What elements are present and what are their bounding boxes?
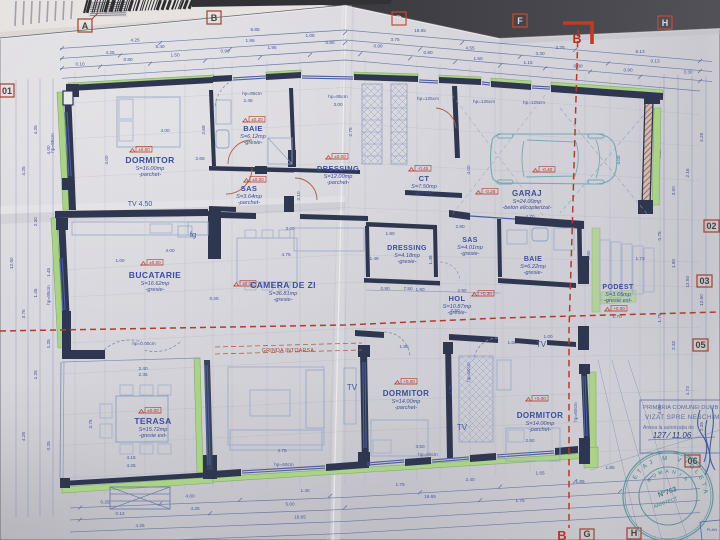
svg-text:hp=85cm: hp=85cm	[328, 94, 348, 99]
svg-text:PLAN: PLAN	[707, 527, 718, 532]
svg-text:4.00: 4.00	[165, 248, 175, 253]
svg-text:GRINDA INTOARSA: GRINDA INTOARSA	[262, 348, 314, 354]
svg-text:CT: CT	[419, 174, 430, 183]
svg-text:TERASA: TERASA	[134, 416, 171, 426]
svg-text:BUCATARIE: BUCATARIE	[129, 270, 181, 280]
svg-text:DRESSING: DRESSING	[387, 245, 427, 252]
svg-text:3.75: 3.75	[88, 419, 93, 429]
svg-text:-0.40: -0.40	[542, 167, 553, 172]
svg-text:hp=60cm: hp=60cm	[466, 362, 471, 382]
svg-text:D: D	[396, 14, 403, 24]
svg-text:3.75: 3.75	[555, 45, 565, 50]
svg-text:4.25: 4.25	[699, 132, 704, 142]
svg-text:1.80: 1.80	[586, 250, 591, 260]
svg-text:1.70: 1.70	[612, 314, 622, 319]
svg-text:-parchet-: -parchet-	[327, 180, 350, 186]
svg-text:2.45: 2.45	[243, 98, 253, 103]
svg-text:B: B	[211, 13, 218, 23]
svg-text:3.75: 3.75	[390, 37, 400, 42]
svg-text:1.50: 1.50	[473, 56, 483, 61]
svg-text:PODEST: PODEST	[602, 284, 634, 291]
svg-text:1.48: 1.48	[369, 256, 379, 261]
svg-text:05: 05	[695, 340, 705, 350]
svg-text:1.75: 1.75	[395, 482, 405, 487]
svg-text:1.65: 1.65	[507, 340, 517, 345]
svg-text:+0.00: +0.00	[534, 396, 546, 401]
svg-text:5.85: 5.85	[250, 27, 260, 32]
svg-text:1.40: 1.40	[300, 488, 310, 493]
svg-text:2.32: 2.32	[671, 340, 676, 350]
svg-text:-gresie-: -gresie-	[146, 287, 165, 293]
svg-text:2.40: 2.40	[138, 366, 148, 371]
svg-text:3.60: 3.60	[285, 226, 295, 231]
svg-text:4.25: 4.25	[21, 431, 26, 441]
svg-text:±0.00: ±0.00	[138, 147, 150, 152]
svg-text:hp=60cm: hp=60cm	[573, 402, 578, 422]
svg-text:-gresie-: -gresie-	[244, 140, 263, 146]
svg-text:±0.20: ±0.20	[251, 117, 263, 122]
svg-text:-0.28: -0.28	[485, 189, 496, 194]
svg-text:1.00: 1.00	[115, 258, 125, 263]
svg-text:4.55: 4.55	[465, 45, 475, 50]
svg-text:A: A	[701, 489, 707, 494]
svg-text:hp=85cm: hp=85cm	[46, 285, 51, 305]
svg-text:hp=85cm: hp=85cm	[242, 91, 262, 96]
svg-text:DRESSING: DRESSING	[317, 164, 359, 173]
svg-text:-gresie-: -gresie-	[461, 251, 480, 257]
svg-text:1.65: 1.65	[535, 471, 545, 476]
svg-text:PRIMĂRIA COMUNEI DUMB: PRIMĂRIA COMUNEI DUMB	[643, 404, 718, 411]
svg-text:-parchet-: -parchet-	[238, 200, 261, 206]
svg-text:1.48: 1.48	[428, 255, 433, 265]
svg-text:1.73: 1.73	[685, 386, 690, 396]
svg-text:DORMITOR: DORMITOR	[517, 411, 564, 420]
svg-text:4.25: 4.25	[130, 38, 140, 43]
svg-text:6.13: 6.13	[635, 49, 645, 54]
svg-text:0.90: 0.90	[373, 44, 383, 49]
svg-text:1.95: 1.95	[245, 38, 255, 43]
svg-text:-beton elicopterizat-: -beton elicopterizat-	[502, 205, 551, 211]
svg-text:M: M	[662, 456, 668, 462]
svg-text:+0.00: +0.00	[403, 379, 415, 384]
svg-text:TV: TV	[347, 383, 358, 392]
svg-text:1.00: 1.00	[543, 334, 553, 339]
svg-text:DORMITOR: DORMITOR	[125, 155, 174, 165]
svg-text:1.85: 1.85	[399, 344, 409, 349]
svg-text:4.70: 4.70	[525, 214, 535, 219]
svg-text:-parchet-: -parchet-	[529, 427, 552, 433]
svg-text:1.80: 1.80	[671, 259, 676, 269]
svg-text:0.25: 0.25	[100, 500, 110, 505]
svg-text:A: A	[82, 21, 89, 31]
svg-text:4.25: 4.25	[21, 166, 26, 176]
svg-text:0.80: 0.80	[123, 57, 133, 62]
svg-text:SAS: SAS	[241, 184, 258, 193]
svg-text:0.80: 0.80	[573, 63, 583, 68]
svg-text:SAS: SAS	[462, 237, 478, 244]
svg-text:3.30: 3.30	[535, 51, 545, 56]
svg-text:BAIE: BAIE	[243, 124, 263, 133]
svg-text:1.45: 1.45	[33, 288, 38, 298]
svg-text:02: 02	[706, 221, 716, 231]
svg-text:4.25: 4.25	[448, 385, 453, 395]
svg-text:5.40: 5.40	[155, 44, 165, 49]
svg-text:hp=60cm: hp=60cm	[274, 462, 294, 467]
svg-text:4.25: 4.25	[135, 523, 145, 528]
svg-text:2.35: 2.35	[699, 422, 704, 432]
svg-text:12.50: 12.50	[685, 276, 690, 288]
svg-text:1.50: 1.50	[170, 52, 180, 57]
svg-text:3.30: 3.30	[683, 69, 693, 74]
svg-text:2.68: 2.68	[201, 125, 206, 135]
svg-text:7.50: 7.50	[403, 286, 413, 291]
svg-text:B: B	[572, 32, 581, 46]
svg-text:1.25: 1.25	[46, 339, 51, 349]
svg-text:0.80: 0.80	[423, 50, 433, 55]
svg-text:+0.30: +0.30	[480, 291, 492, 296]
svg-text:1.25: 1.25	[33, 370, 38, 380]
svg-text:TV: TV	[457, 423, 468, 432]
svg-text:1.80: 1.80	[385, 231, 395, 236]
svg-text:2.75: 2.75	[348, 127, 353, 137]
svg-text:4.75: 4.75	[281, 252, 291, 257]
svg-text:hp=125cm: hp=125cm	[473, 99, 495, 104]
svg-text:0.90: 0.90	[380, 286, 390, 291]
svg-text:2.90: 2.90	[455, 224, 465, 229]
svg-text:2.40: 2.40	[465, 477, 475, 482]
svg-text:4.25: 4.25	[33, 125, 38, 135]
svg-text:0.12: 0.12	[115, 511, 125, 516]
svg-text:4.25: 4.25	[190, 506, 200, 511]
svg-text:4.25: 4.25	[126, 463, 136, 468]
svg-text:2.30: 2.30	[33, 217, 38, 227]
svg-text:03: 03	[699, 276, 709, 286]
svg-text:0.80: 0.80	[325, 40, 335, 45]
svg-text:HOL: HOL	[448, 294, 465, 303]
svg-text:0.10: 0.10	[75, 62, 85, 67]
svg-text:4.75: 4.75	[277, 448, 287, 453]
svg-text:4.00: 4.00	[616, 155, 621, 165]
svg-text:DORMITOR: DORMITOR	[383, 389, 430, 398]
svg-text:0.25: 0.25	[46, 441, 51, 451]
svg-text:-parchet-: -parchet-	[139, 172, 162, 178]
svg-text:12.50: 12.50	[699, 294, 704, 306]
svg-text:TV: TV	[536, 340, 547, 349]
svg-text:-gresie-: -gresie-	[274, 297, 293, 303]
svg-text:3.75: 3.75	[21, 309, 26, 319]
svg-text:2.68: 2.68	[195, 156, 205, 161]
svg-text:2.50: 2.50	[525, 438, 535, 443]
svg-text:3.10: 3.10	[296, 191, 301, 201]
svg-text:CAMERA DE ZI: CAMERA DE ZI	[250, 280, 316, 290]
svg-text:+0.00: +0.00	[613, 306, 625, 311]
svg-text:-0.45: -0.45	[418, 166, 429, 171]
svg-text:4.00: 4.00	[466, 165, 471, 175]
svg-text:1.45: 1.45	[46, 267, 51, 277]
svg-text:4.00: 4.00	[185, 493, 195, 498]
svg-text:TV 4.50: TV 4.50	[128, 201, 153, 208]
svg-text:fg: fg	[190, 230, 196, 239]
svg-text:BAIE: BAIE	[524, 256, 542, 263]
svg-text:B: B	[557, 528, 566, 540]
svg-text:F: F	[517, 16, 523, 26]
svg-text:H: H	[631, 528, 638, 538]
svg-text:-parchet-: -parchet-	[395, 405, 418, 411]
svg-text:H: H	[662, 18, 669, 28]
svg-text:-gresie ext-: -gresie ext-	[139, 433, 167, 439]
svg-text:-gresie-: -gresie-	[524, 270, 543, 276]
svg-text:3.50: 3.50	[415, 444, 425, 449]
svg-text:-gresie ext-: -gresie ext-	[604, 298, 632, 304]
svg-text:18.65: 18.65	[294, 514, 306, 519]
svg-text:-gresie-: -gresie-	[415, 190, 434, 196]
svg-text:hp=0.00cm: hp=0.00cm	[132, 341, 155, 346]
svg-text:2.90: 2.90	[457, 288, 467, 293]
svg-text:1.15: 1.15	[523, 60, 533, 65]
svg-text:3.00: 3.00	[671, 186, 676, 196]
svg-text:hp=60cm: hp=60cm	[418, 452, 438, 457]
svg-text:±0.00: ±0.00	[147, 408, 159, 413]
svg-text:4.00: 4.00	[104, 155, 109, 165]
svg-text:±0.00: ±0.00	[149, 260, 161, 265]
svg-text:0.75: 0.75	[657, 231, 662, 241]
svg-text:1.90: 1.90	[415, 287, 425, 292]
svg-text:VIZAT SPRE NESCHIMB: VIZAT SPRE NESCHIMB	[645, 414, 720, 421]
svg-text:0.25: 0.25	[209, 296, 219, 301]
svg-text:1.06: 1.06	[305, 33, 315, 38]
svg-text:GARAJ: GARAJ	[512, 189, 542, 198]
svg-text:1.75: 1.75	[657, 313, 662, 323]
svg-text:2.35: 2.35	[138, 372, 148, 377]
svg-text:hp=125cm: hp=125cm	[417, 96, 439, 101]
svg-text:5.00: 5.00	[285, 502, 295, 507]
svg-text:hp=125cm: hp=125cm	[523, 100, 545, 105]
svg-text:±0.00: ±0.00	[334, 154, 346, 159]
svg-text:4.25: 4.25	[105, 50, 115, 55]
svg-text:0.90: 0.90	[623, 68, 633, 73]
svg-text:±0.00: ±0.00	[252, 177, 264, 182]
svg-text:4.15: 4.15	[126, 455, 136, 460]
svg-text:4.00: 4.00	[160, 128, 170, 133]
svg-text:hp=85cm: hp=85cm	[50, 133, 55, 153]
svg-text:01: 01	[2, 86, 12, 96]
svg-text:G: G	[583, 529, 590, 539]
svg-text:3.00: 3.00	[333, 102, 343, 107]
svg-text:2.16: 2.16	[685, 168, 690, 178]
svg-text:12.50: 12.50	[9, 257, 14, 269]
svg-text:1.95: 1.95	[267, 45, 277, 50]
svg-text:18.65: 18.65	[414, 28, 426, 33]
svg-text:0.13: 0.13	[650, 59, 660, 64]
svg-text:18.65: 18.65	[424, 494, 436, 499]
svg-text:0.90: 0.90	[220, 49, 230, 54]
svg-text:1.85: 1.85	[575, 479, 585, 484]
svg-text:1.73: 1.73	[635, 256, 645, 261]
svg-text:1.75: 1.75	[515, 498, 525, 503]
svg-text:7.50: 7.50	[450, 308, 460, 313]
svg-text:-gresie-: -gresie-	[398, 259, 417, 265]
